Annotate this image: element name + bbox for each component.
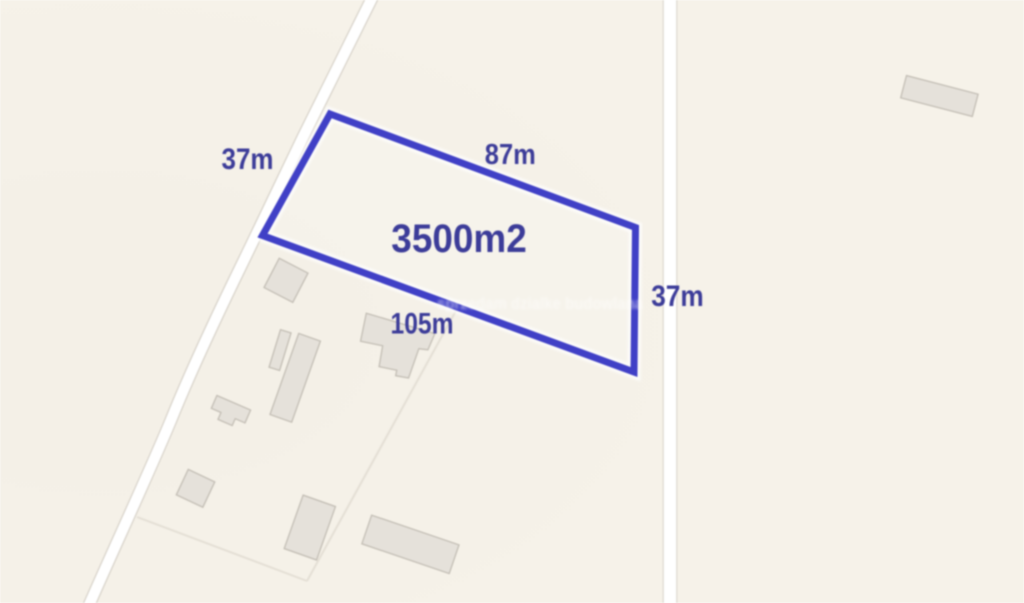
svg-text:105m: 105m: [391, 308, 454, 341]
svg-text:37m: 37m: [651, 280, 704, 313]
svg-text:37m: 37m: [222, 143, 274, 176]
svg-text:sprzedam dzialke budowlana: sprzedam dzialke budowlana: [437, 294, 643, 313]
svg-text:3500m2: 3500m2: [391, 217, 527, 261]
svg-text:87m: 87m: [485, 139, 536, 171]
